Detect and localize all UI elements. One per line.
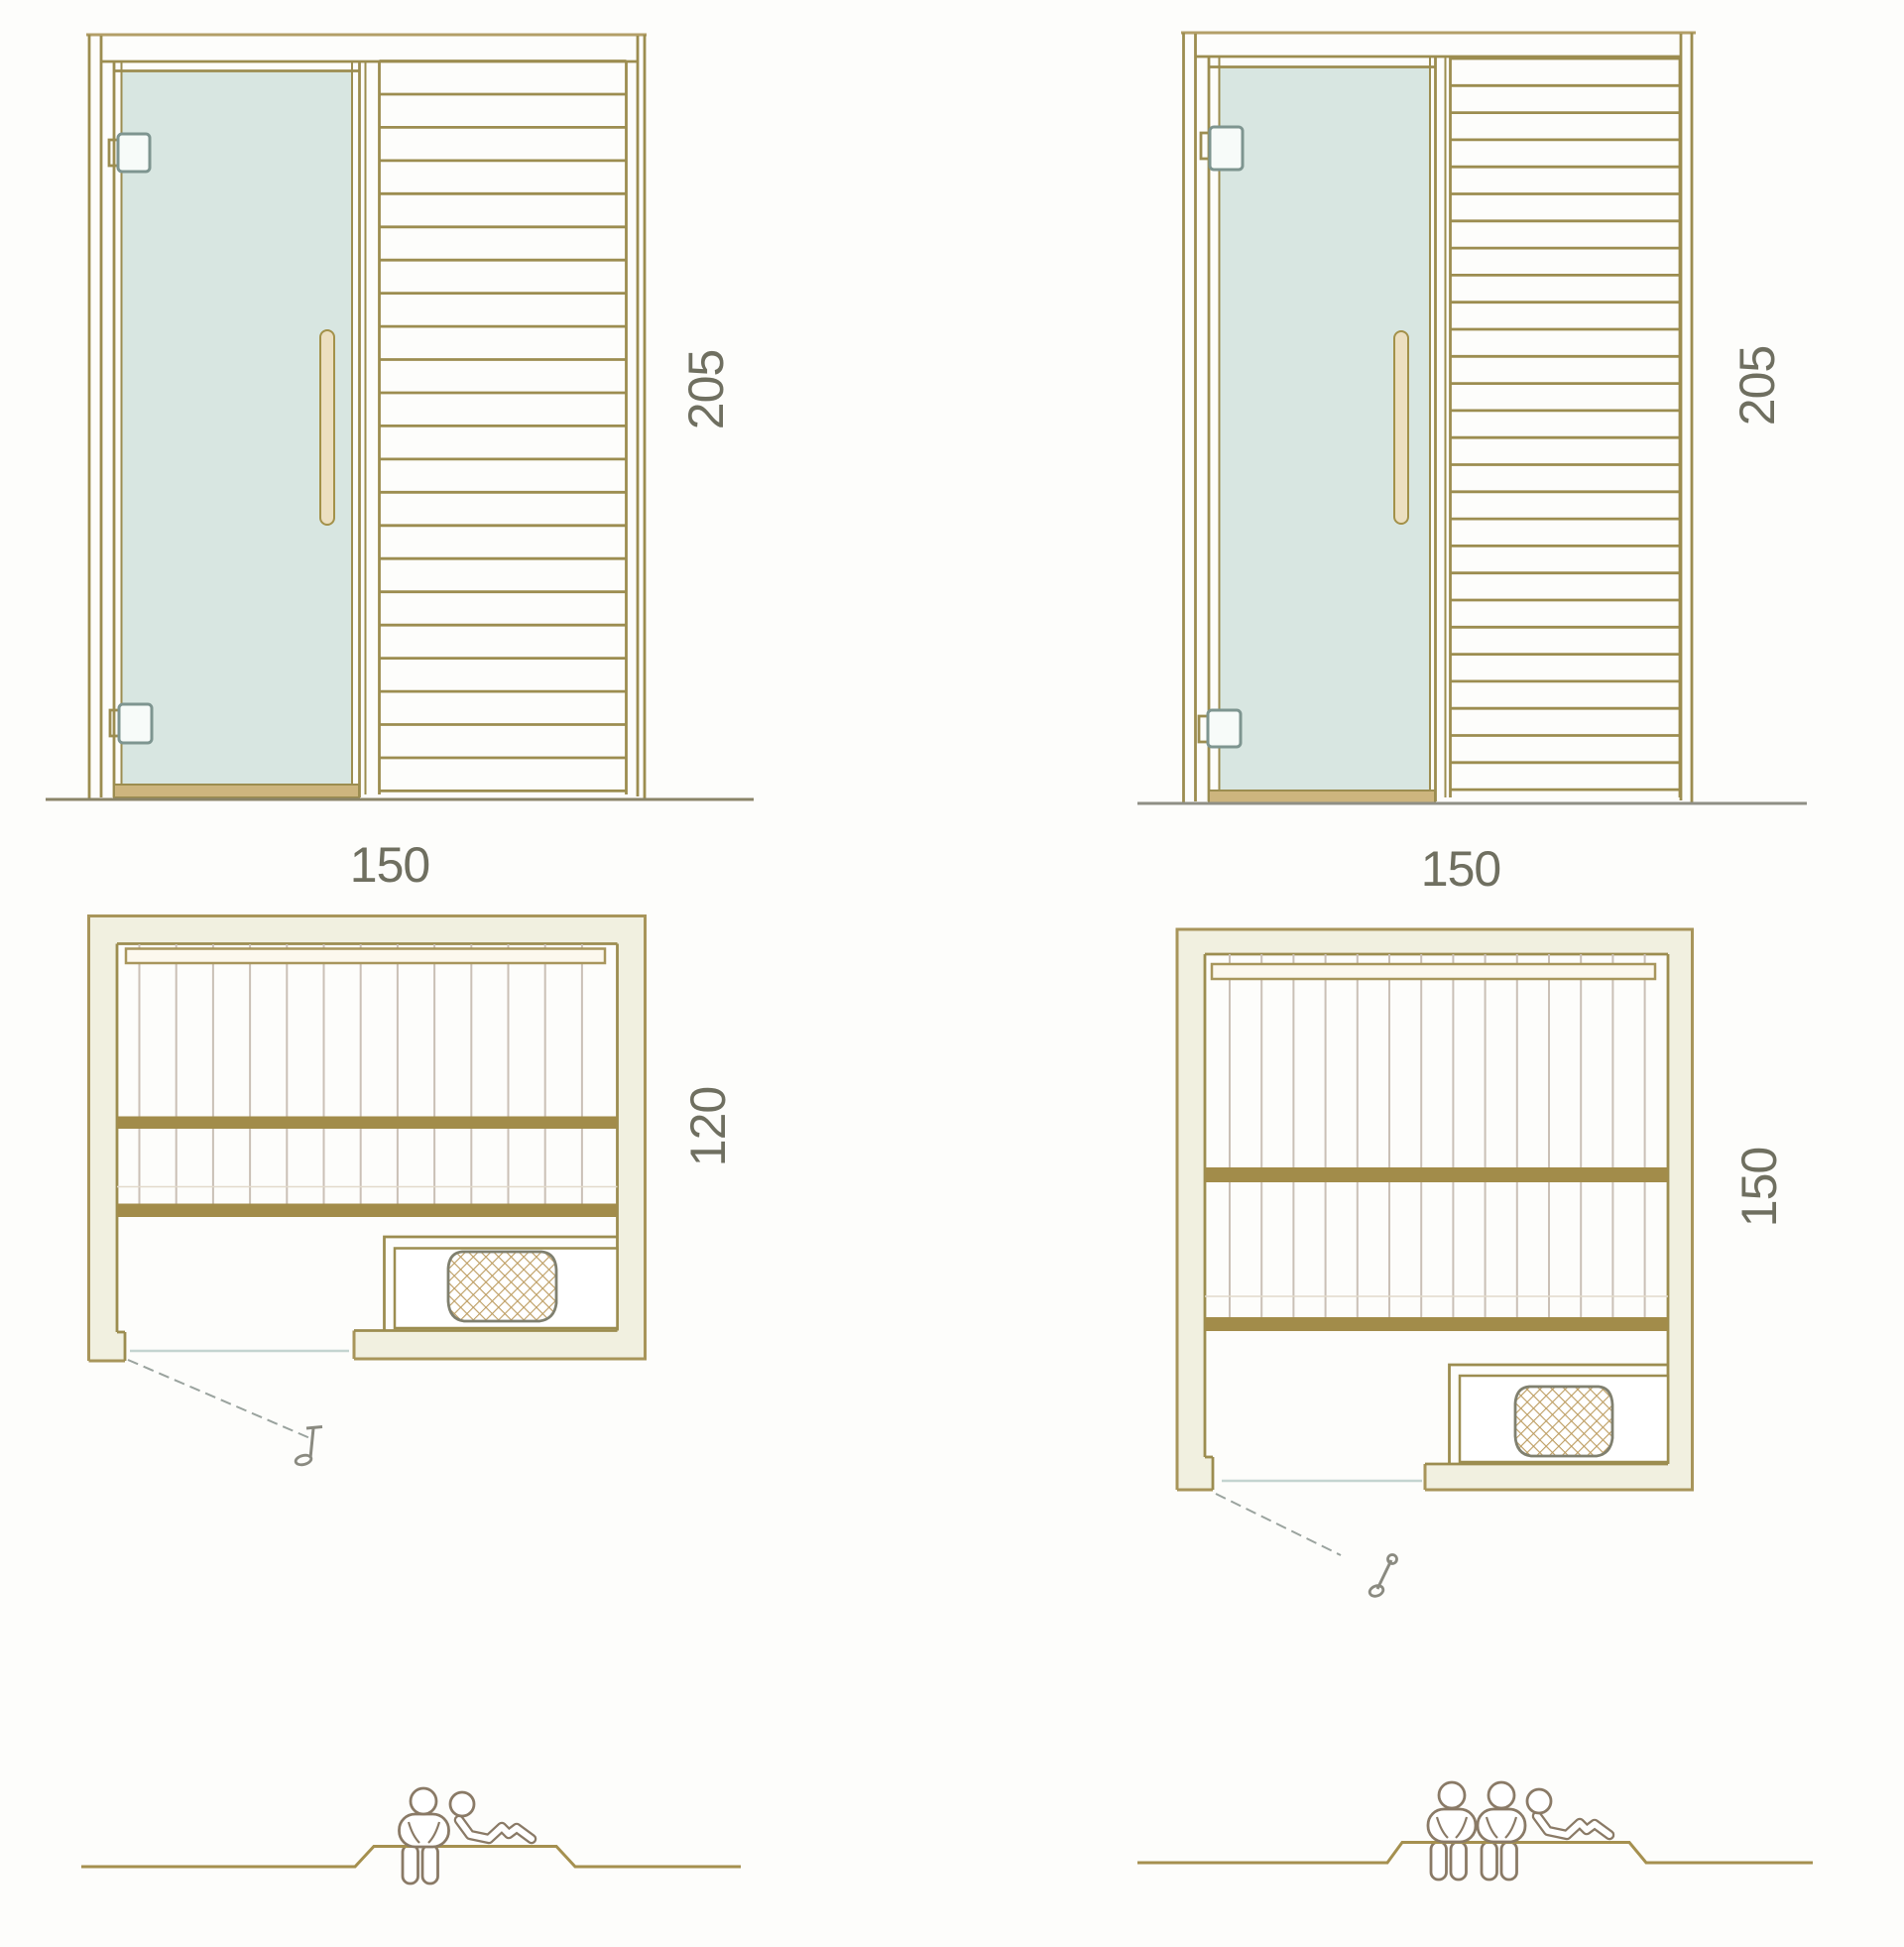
svg-text:150: 150 bbox=[1421, 841, 1500, 897]
svg-text:150: 150 bbox=[1731, 1148, 1787, 1227]
svg-text:150: 150 bbox=[350, 837, 429, 893]
svg-text:205: 205 bbox=[678, 350, 734, 429]
svg-text:205: 205 bbox=[1729, 346, 1785, 426]
svg-text:120: 120 bbox=[680, 1087, 736, 1166]
